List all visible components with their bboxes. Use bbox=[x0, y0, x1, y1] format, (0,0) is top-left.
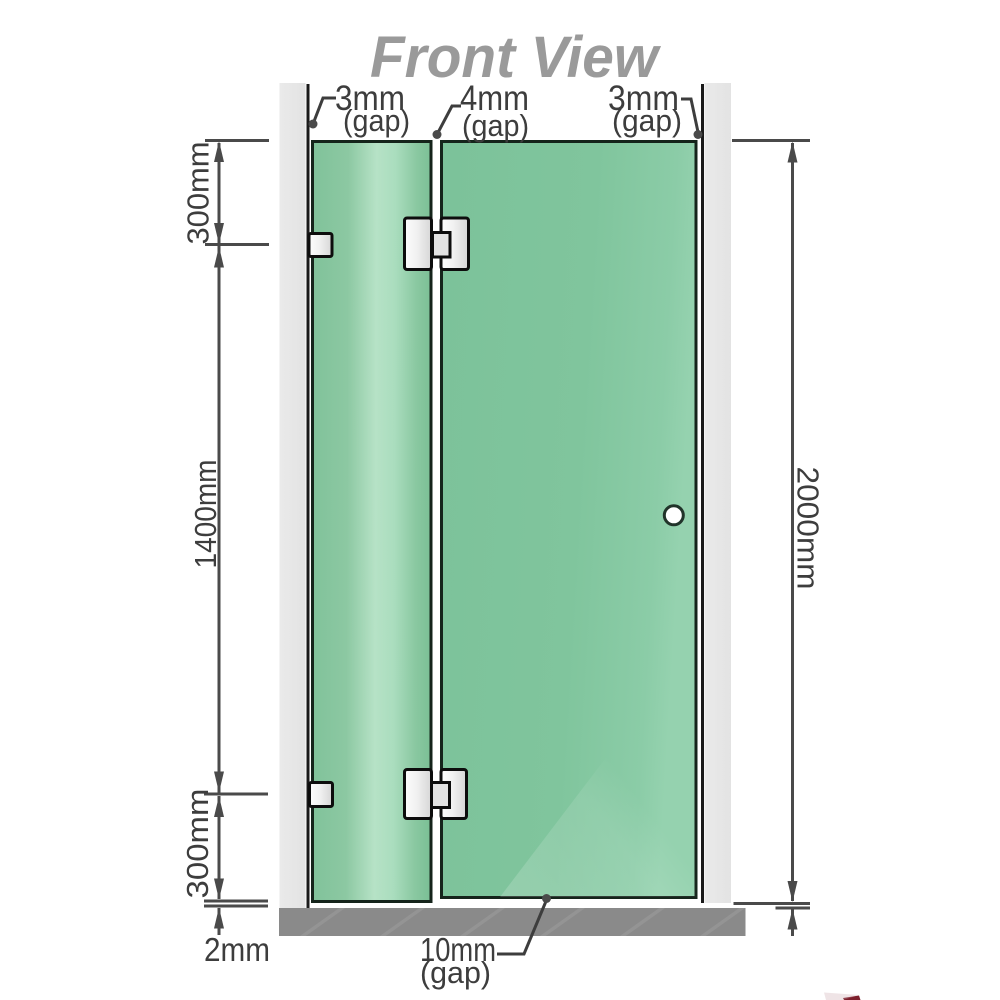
svg-text:(gap): (gap) bbox=[462, 108, 529, 143]
svg-text:2mm: 2mm bbox=[204, 931, 270, 968]
svg-text:2000mm: 2000mm bbox=[790, 467, 825, 590]
svg-text:(gap): (gap) bbox=[612, 103, 682, 138]
svg-text:1400mm: 1400mm bbox=[188, 460, 223, 569]
svg-text:(gap): (gap) bbox=[420, 955, 491, 990]
svg-text:300mm: 300mm bbox=[180, 789, 215, 899]
svg-text:300mm: 300mm bbox=[181, 142, 216, 245]
svg-text:(gap): (gap) bbox=[343, 103, 410, 138]
